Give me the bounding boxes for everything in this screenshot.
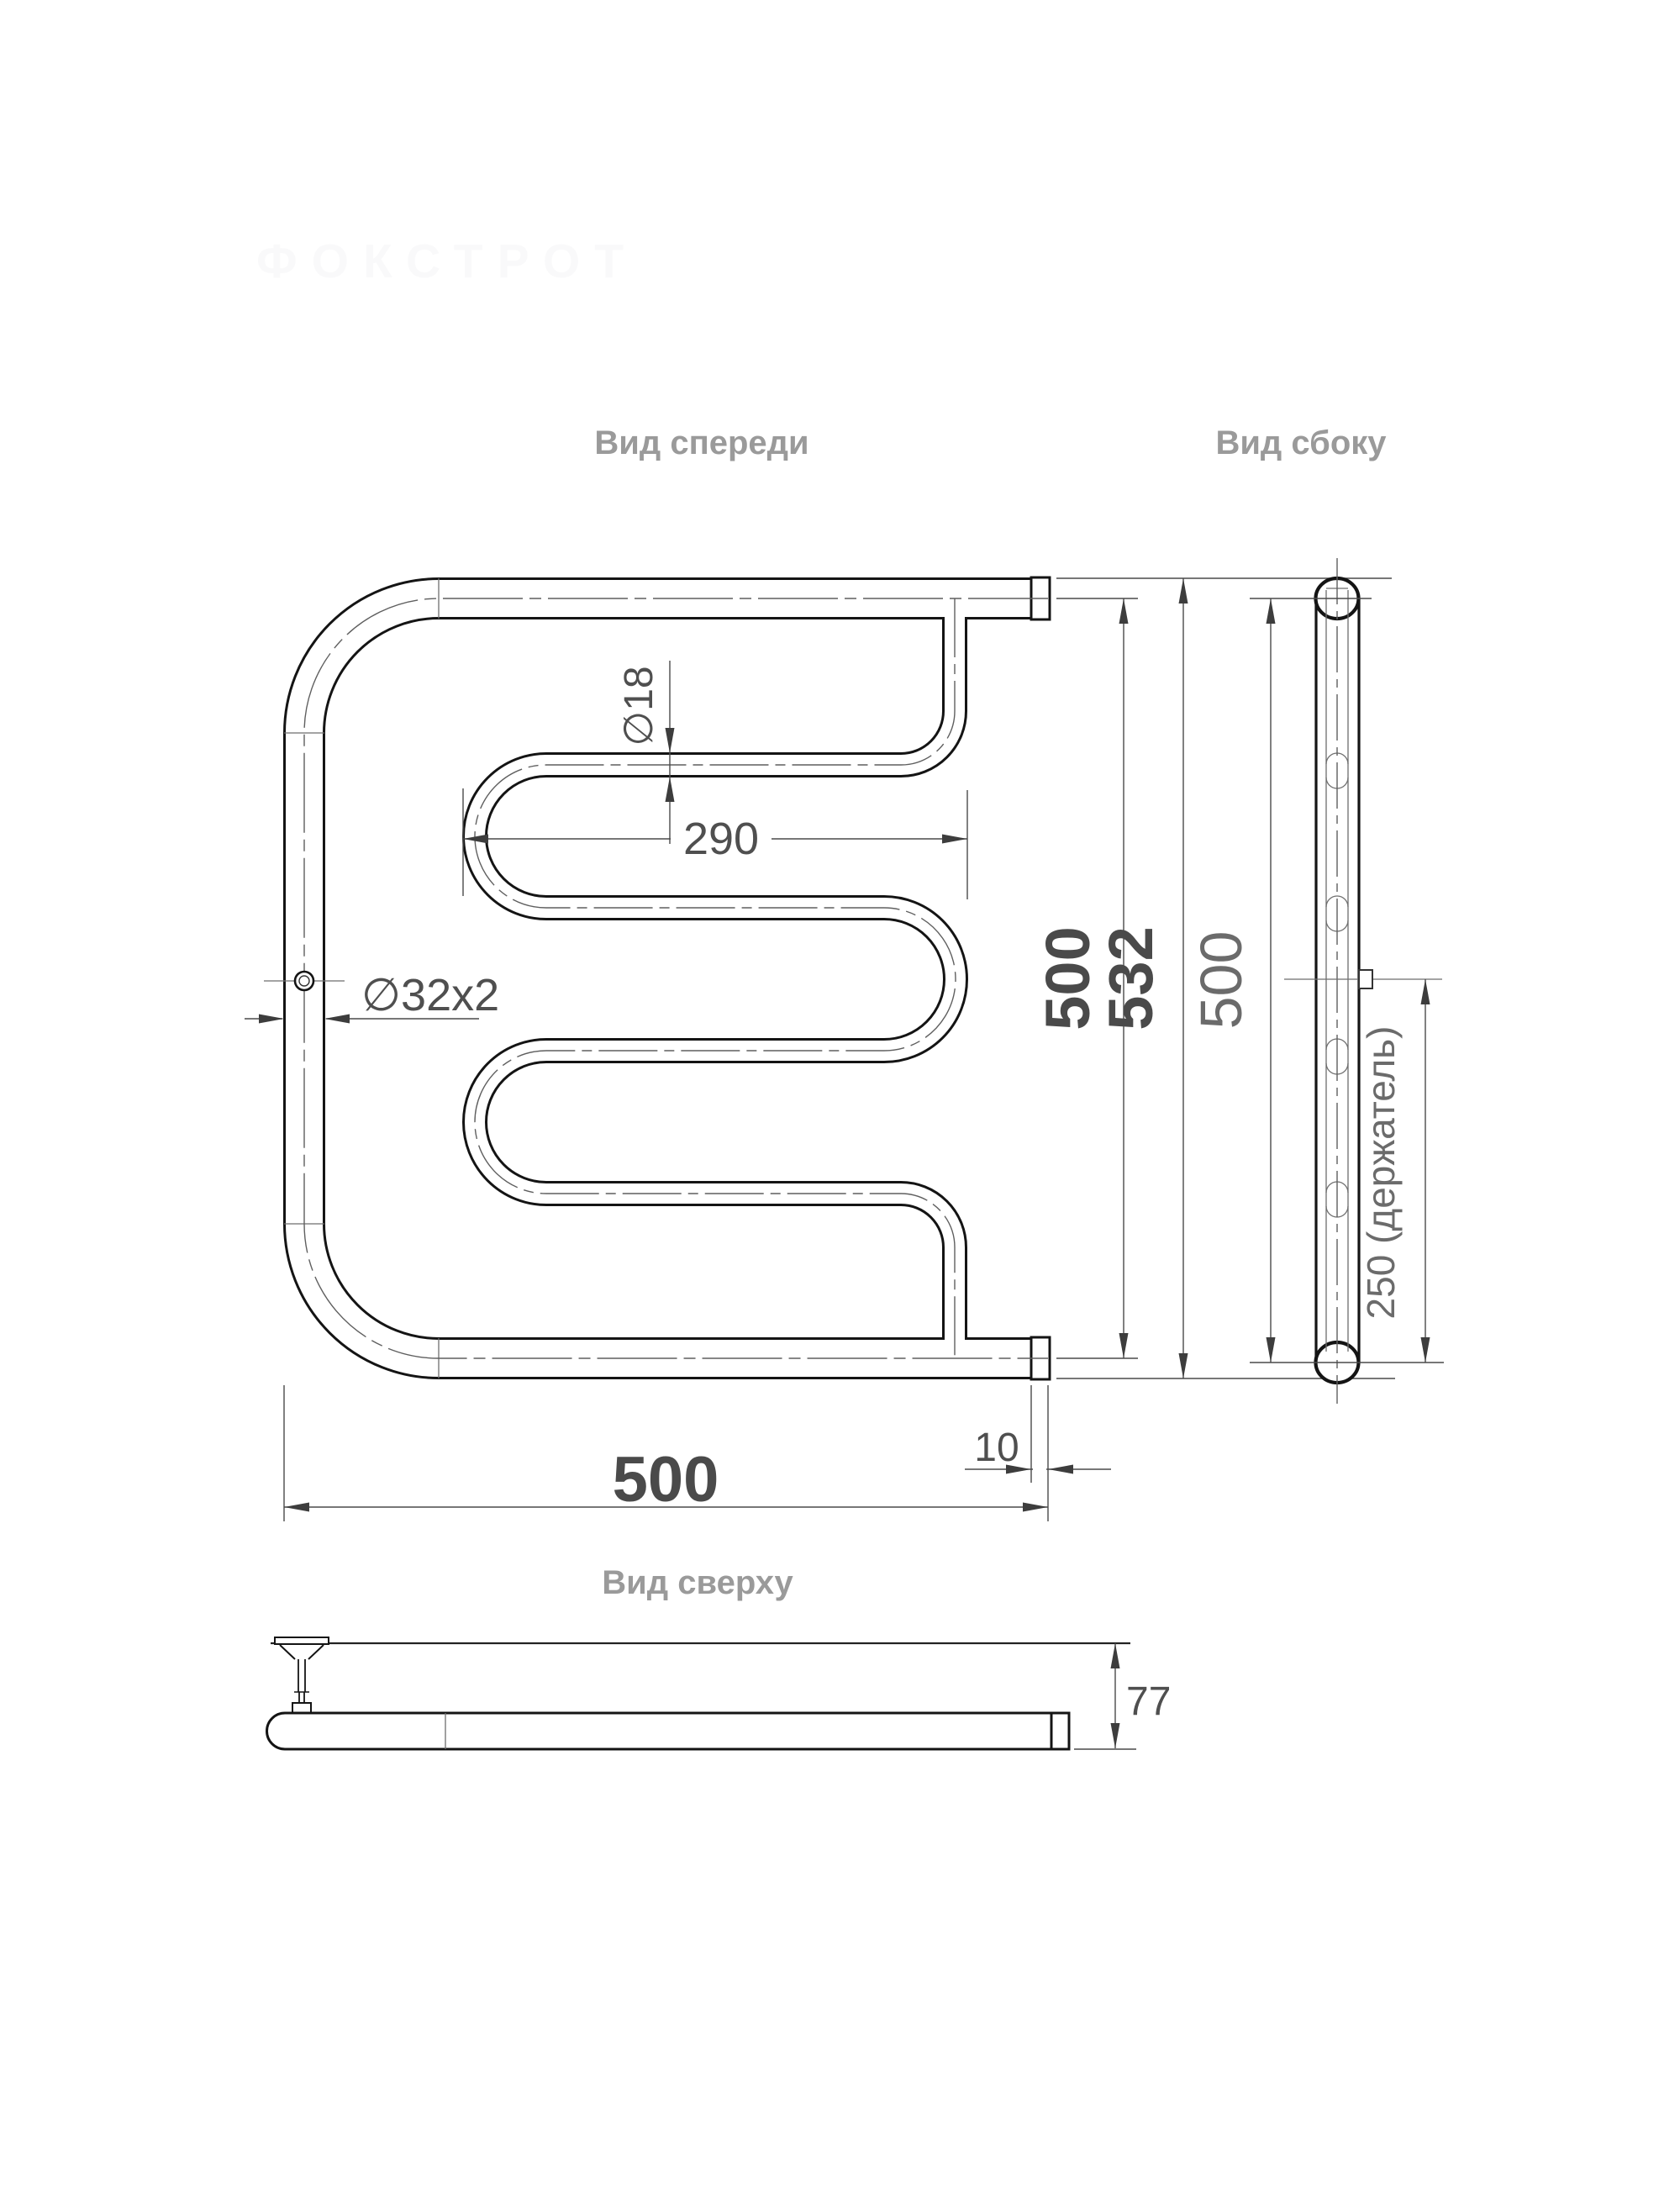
top-end-cap xyxy=(1051,1713,1069,1749)
side-height-label: 500 xyxy=(1188,931,1254,1030)
serpentine-width-label: 290 xyxy=(683,814,759,864)
top-pipe-outline xyxy=(267,1713,1052,1749)
top-view: Вид сверху 77 xyxy=(267,1564,1172,1749)
pipe-diameter-label: ∅32x2 xyxy=(361,970,499,1020)
side-view: Вид сбоку xyxy=(1188,424,1444,1404)
watermark: ФОКСТРОТ xyxy=(256,235,638,288)
front-view-title: Вид спереди xyxy=(594,424,808,461)
top-view-title: Вид сверху xyxy=(602,1564,793,1601)
depth-label: 77 xyxy=(1126,1679,1171,1724)
dim-end-offset: 10 xyxy=(965,1385,1111,1483)
serpentine-diameter-label: ∅18 xyxy=(617,666,661,746)
air-vent-hole xyxy=(264,972,345,990)
height-overall-label: 532 xyxy=(1096,926,1166,1030)
side-view-title: Вид сбоку xyxy=(1215,424,1387,461)
wall-bracket xyxy=(275,1637,329,1713)
end-offset-label: 10 xyxy=(974,1426,1019,1470)
dim-pipe-diameter: ∅32x2 xyxy=(245,970,499,1024)
dim-width-overall: 500 xyxy=(284,1385,1048,1521)
height-axes-label: 500 xyxy=(1033,926,1103,1030)
holder-spacing-label: 250 (держатель) xyxy=(1359,1026,1403,1320)
serpentine-pipe-inner xyxy=(475,598,956,1358)
width-overall-label: 500 xyxy=(613,1444,719,1515)
dim-holder: 250 (держатель) xyxy=(1359,979,1430,1363)
wall-holder xyxy=(1359,970,1372,988)
serpentine-pipe xyxy=(475,598,956,1358)
dim-depth: 77 xyxy=(1074,1643,1171,1749)
dim-serpentine-width: 290 xyxy=(463,788,967,899)
top-pipe xyxy=(267,1713,1070,1749)
technical-drawing: ФОКСТРОТ Вид спереди xyxy=(0,0,1680,2198)
